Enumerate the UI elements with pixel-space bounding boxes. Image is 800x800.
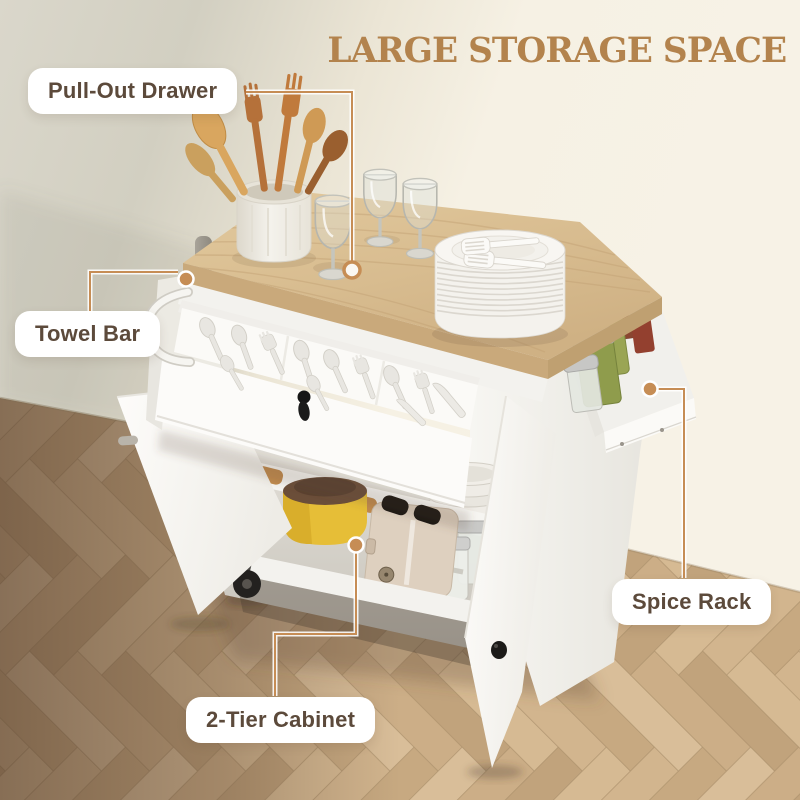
towel-bar-line [90, 272, 178, 311]
two-tier-cabinet-line [275, 553, 356, 696]
callout-two-tier-cabinet-label: 2-Tier Cabinet [206, 707, 355, 732]
callout-towel-bar: Towel Bar [15, 311, 160, 357]
callout-pull-out-drawer: Pull-Out Drawer [28, 68, 237, 114]
towel-bar-dot [179, 272, 194, 287]
spice-rack-dot [643, 382, 658, 397]
pull-out-drawer-dot [344, 262, 360, 278]
callout-spice-rack-label: Spice Rack [632, 589, 751, 614]
callout-lines [0, 0, 800, 800]
callout-spice-rack: Spice Rack [612, 579, 771, 625]
spice-rack-line [658, 389, 684, 578]
callout-pull-out-drawer-label: Pull-Out Drawer [48, 78, 217, 103]
pull-out-drawer-line [246, 92, 352, 261]
two-tier-cabinet-dot [349, 538, 364, 553]
page-title: LARGE STORAGE SPACE [327, 30, 786, 71]
product-feature-image: LARGE STORAGE SPACE Pull-Out Drawer Towe… [0, 0, 800, 800]
callout-towel-bar-label: Towel Bar [35, 321, 140, 346]
callout-two-tier-cabinet: 2-Tier Cabinet [186, 697, 375, 743]
